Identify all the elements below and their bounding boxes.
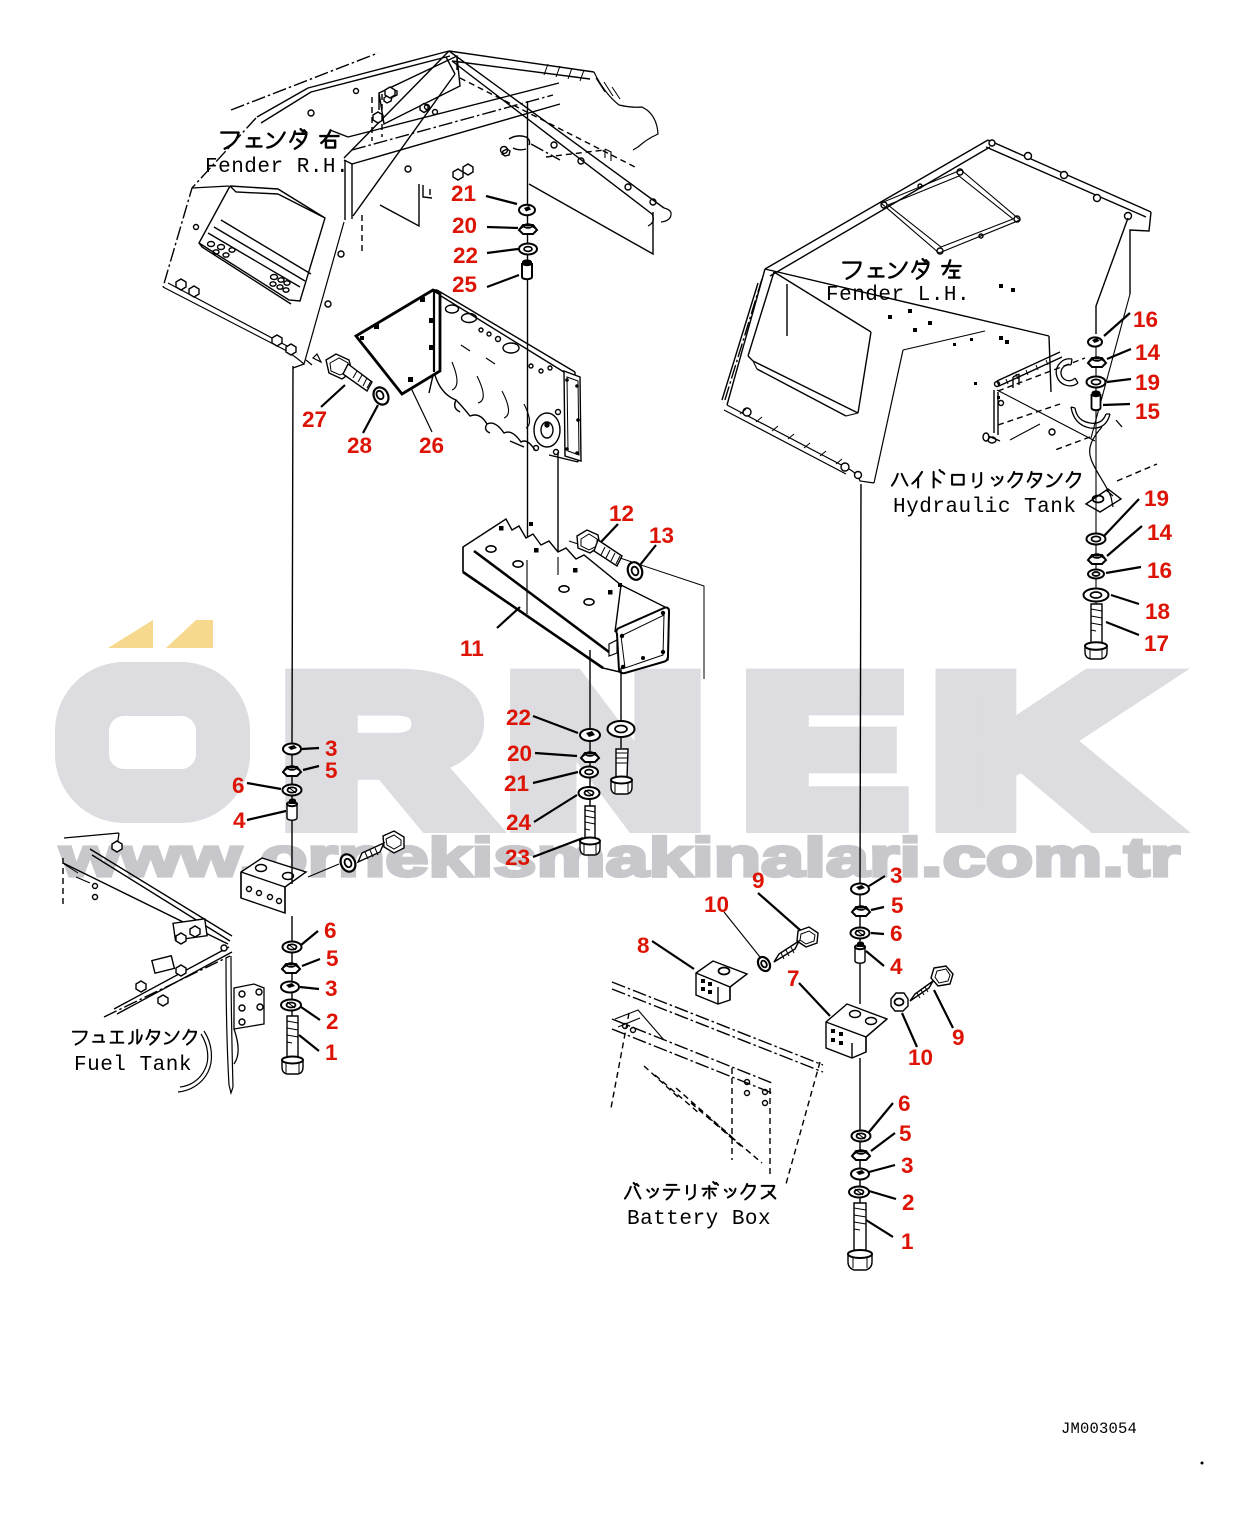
svg-text:Fuel Tank: Fuel Tank (74, 1054, 192, 1077)
svg-text:2: 2 (326, 1009, 339, 1034)
svg-text:5: 5 (899, 1121, 912, 1146)
svg-text:11: 11 (460, 636, 484, 661)
svg-text:26: 26 (419, 433, 444, 458)
svg-text:Hydraulic Tank: Hydraulic Tank (893, 496, 1076, 519)
svg-text:Battery Box: Battery Box (627, 1208, 771, 1231)
svg-text:6: 6 (232, 773, 245, 798)
svg-text:13: 13 (649, 523, 674, 548)
svg-text:9: 9 (952, 1025, 965, 1050)
svg-text:12: 12 (609, 501, 634, 526)
svg-text:21: 21 (451, 181, 476, 206)
svg-text:5: 5 (325, 758, 338, 783)
svg-text:16: 16 (1147, 558, 1172, 583)
svg-text:21: 21 (504, 771, 529, 796)
svg-text:3: 3 (890, 863, 903, 888)
svg-text:4: 4 (233, 808, 246, 833)
svg-text:23: 23 (505, 845, 530, 870)
svg-text:Fender L.H.: Fender L.H. (826, 284, 970, 307)
svg-text:3: 3 (901, 1153, 914, 1178)
svg-text:18: 18 (1145, 599, 1170, 624)
svg-text:16: 16 (1133, 307, 1158, 332)
svg-text:25: 25 (452, 272, 477, 297)
svg-text:22: 22 (506, 705, 531, 730)
svg-text:JM003054: JM003054 (1061, 1420, 1137, 1438)
svg-text:10: 10 (704, 892, 729, 917)
svg-text:1: 1 (901, 1229, 914, 1254)
svg-text:24: 24 (506, 810, 532, 835)
svg-text:6: 6 (890, 921, 903, 946)
svg-text:4: 4 (890, 954, 903, 979)
svg-text:9: 9 (752, 868, 765, 893)
svg-text:19: 19 (1144, 486, 1169, 511)
svg-text:10: 10 (908, 1045, 933, 1070)
svg-text:5: 5 (891, 893, 904, 918)
svg-text:22: 22 (453, 243, 478, 268)
svg-text:20: 20 (507, 741, 532, 766)
svg-text:27: 27 (302, 407, 327, 432)
svg-text:20: 20 (452, 213, 477, 238)
svg-text:17: 17 (1144, 631, 1169, 656)
svg-text:14: 14 (1135, 340, 1161, 365)
svg-text:www.ornekismakinalari.com.tr: www.ornekismakinalari.com.tr (59, 826, 1180, 888)
svg-text:7: 7 (787, 966, 800, 991)
svg-text:Fender R.H.: Fender R.H. (205, 156, 349, 179)
svg-text:28: 28 (347, 433, 372, 458)
svg-text:2: 2 (902, 1190, 915, 1215)
svg-text:1: 1 (325, 1040, 338, 1065)
svg-text:8: 8 (637, 933, 650, 958)
svg-text:6: 6 (898, 1091, 911, 1116)
svg-text:3: 3 (325, 976, 338, 1001)
svg-text:15: 15 (1135, 399, 1160, 424)
svg-text:6: 6 (324, 918, 337, 943)
svg-text:5: 5 (326, 946, 339, 971)
svg-text:14: 14 (1147, 520, 1173, 545)
svg-text:19: 19 (1135, 370, 1160, 395)
